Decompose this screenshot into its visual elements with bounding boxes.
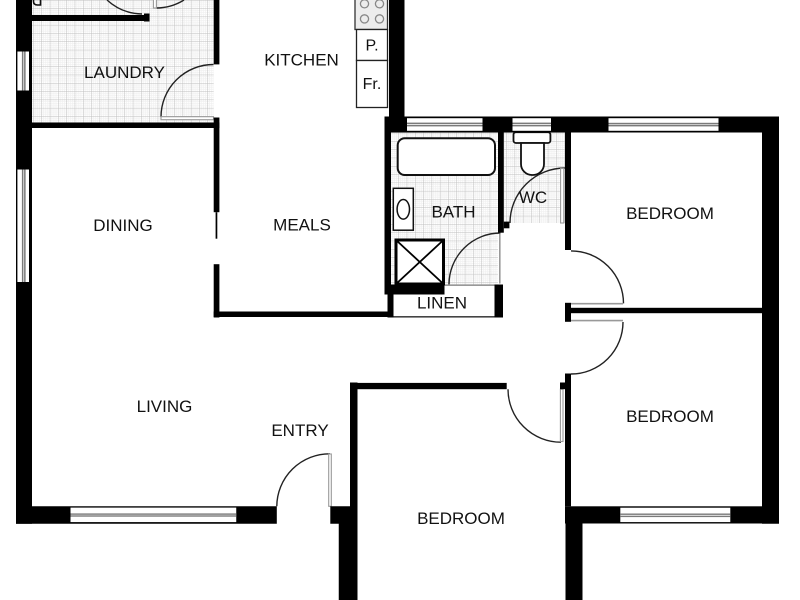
- svg-text:LIVING: LIVING: [137, 397, 193, 416]
- svg-text:WC: WC: [519, 188, 547, 207]
- svg-text:BEDROOM: BEDROOM: [626, 407, 714, 426]
- svg-text:ENTRY: ENTRY: [271, 421, 328, 440]
- svg-text:MEALS: MEALS: [273, 216, 331, 235]
- svg-text:DINING: DINING: [93, 216, 153, 235]
- svg-text:BATH: BATH: [431, 203, 475, 222]
- svg-text:BEDROOM: BEDROOM: [417, 509, 505, 528]
- svg-text:P.: P.: [365, 38, 378, 55]
- svg-text:LAUNDRY: LAUNDRY: [84, 63, 165, 82]
- svg-text:KITCHEN: KITCHEN: [264, 51, 339, 70]
- svg-text:BEDROOM: BEDROOM: [626, 204, 714, 223]
- svg-text:Fr.: Fr.: [363, 76, 382, 93]
- svg-text:LINEN: LINEN: [417, 294, 467, 313]
